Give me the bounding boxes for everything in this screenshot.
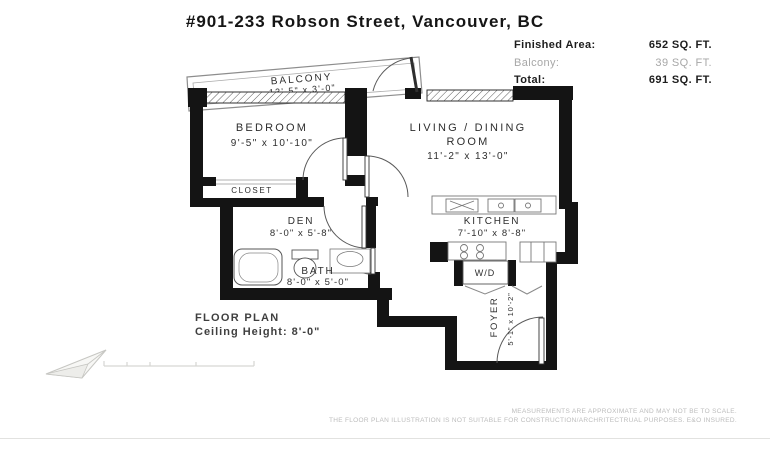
scale-bar — [104, 361, 254, 366]
closet-shelf — [216, 180, 296, 184]
bath-dims: 8'-0" x 5'-0" — [287, 277, 349, 288]
living-label-line2: ROOM — [446, 136, 489, 148]
area-label: Finished Area: — [514, 37, 596, 55]
north-arrow-icon — [46, 350, 106, 378]
fridge — [520, 242, 556, 262]
bedroom-dims: 9'-5" x 10'-10" — [231, 138, 314, 149]
foyer-label: FOYER — [489, 297, 500, 338]
disclaimer-line2: THE FLOOR PLAN ILLUSTRATION IS NOT SUITA… — [329, 417, 737, 426]
floorplan-page: BALCONY 13'-5" x 3'-0" — [0, 0, 770, 450]
disclaimer-line1: MEASUREMENTS ARE APPROXIMATE AND MAY NOT… — [329, 408, 737, 417]
page-title: #901-233 Robson Street, Vancouver, BC — [0, 12, 730, 32]
bath-sink — [337, 252, 363, 267]
living-label-line1: LIVING / DINING — [410, 122, 527, 134]
area-row-total: Total: 691 SQ. FT. — [514, 72, 712, 90]
area-value: 39 SQ. FT. — [655, 55, 712, 73]
area-label: Total: — [514, 72, 546, 90]
area-summary: Finished Area: 652 SQ. FT. Balcony: 39 S… — [514, 37, 712, 90]
kitchen-dims: 7'-10" x 8'-8" — [458, 228, 527, 239]
den-label: DEN — [288, 216, 315, 227]
bedroom-label: BEDROOM — [236, 122, 308, 134]
disclaimer: MEASUREMENTS ARE APPROXIMATE AND MAY NOT… — [329, 408, 737, 425]
living-dims: 11'-2" x 13'-0" — [427, 151, 509, 162]
plan-caption-title: FLOOR PLAN — [195, 311, 320, 325]
den-dims: 8'-0" x 5'-8" — [270, 228, 332, 239]
area-label: Balcony: — [514, 55, 559, 73]
bath-label: BATH — [301, 266, 334, 277]
closet-label: CLOSET — [231, 186, 273, 195]
kitchen-label: KITCHEN — [464, 216, 521, 227]
wd-label: W/D — [475, 268, 496, 278]
area-row-balcony: Balcony: 39 SQ. FT. — [514, 55, 712, 73]
foyer-dims: 5'-1" x 10'-2" — [506, 292, 515, 345]
area-value: 652 SQ. FT. — [649, 37, 712, 55]
area-row-finished: Finished Area: 652 SQ. FT. — [514, 37, 712, 55]
plan-caption-ceiling: Ceiling Height: 8'-0" — [195, 325, 320, 339]
area-value: 691 SQ. FT. — [649, 72, 712, 90]
plan-caption: FLOOR PLAN Ceiling Height: 8'-0" — [195, 311, 320, 339]
